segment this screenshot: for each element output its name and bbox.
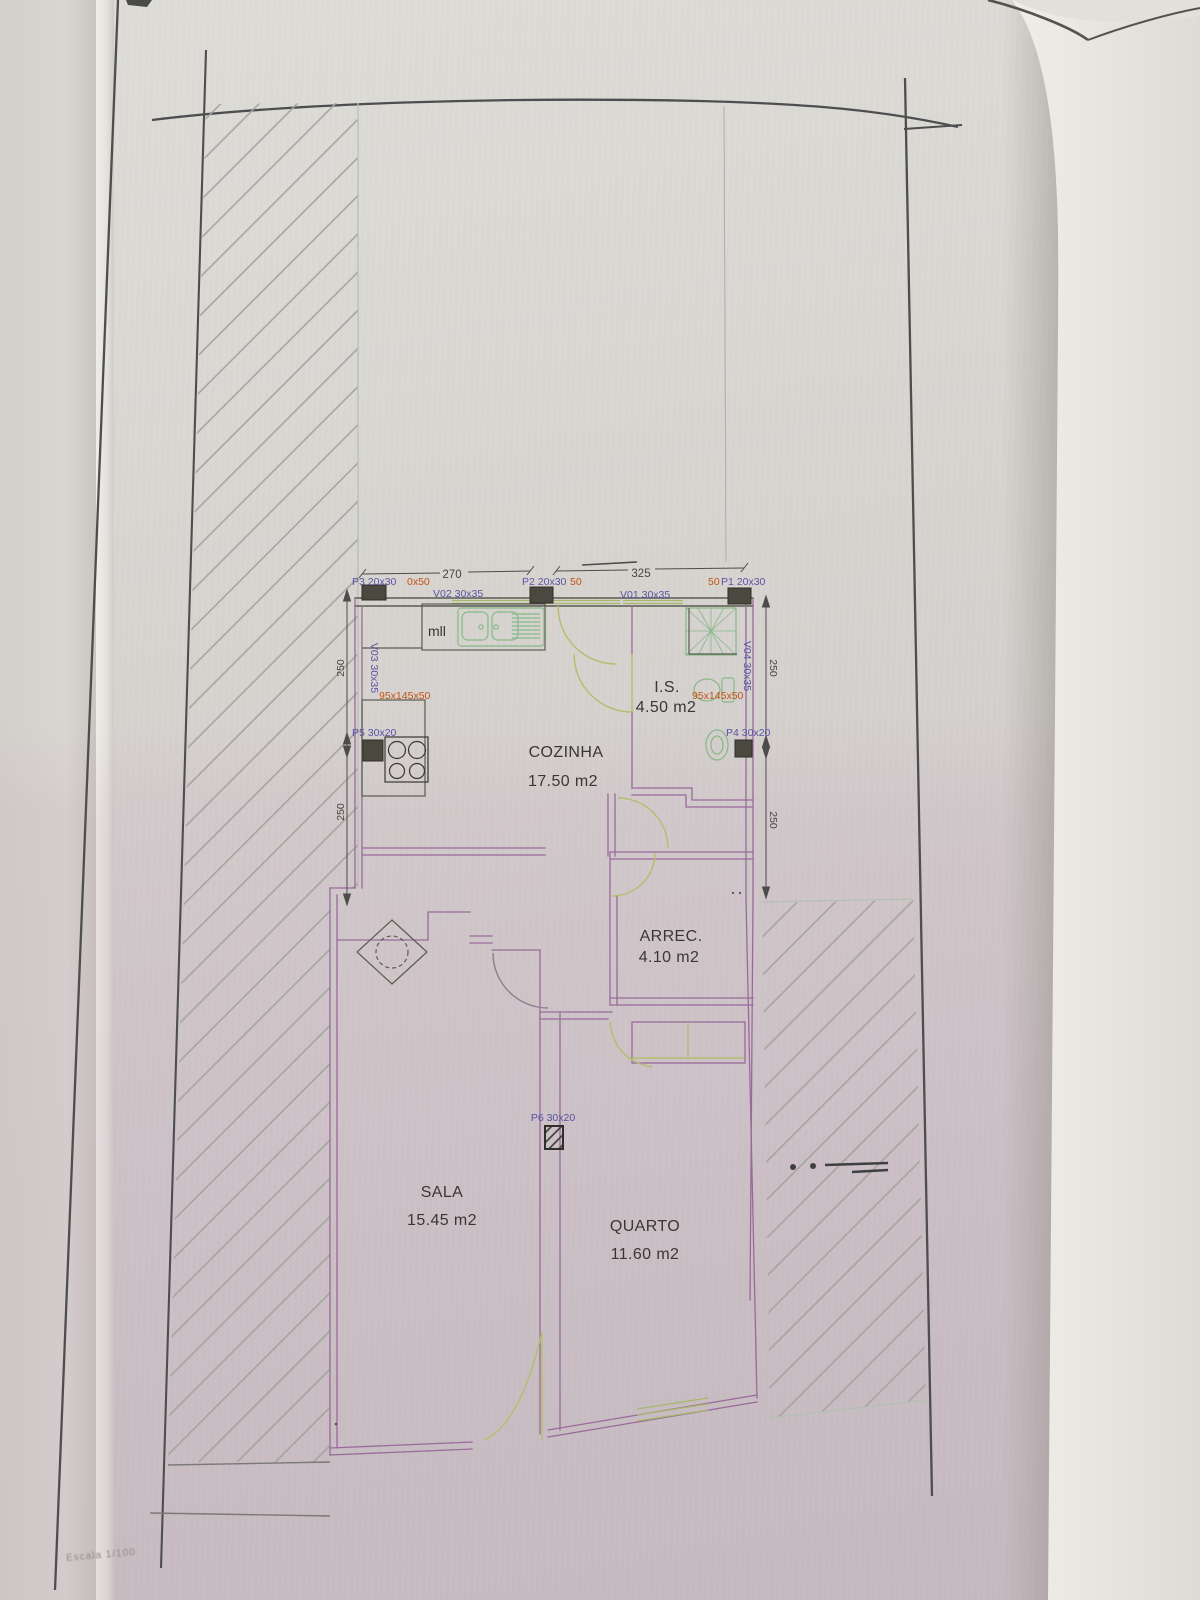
label-door-p4: P4 30x20 bbox=[726, 727, 771, 739]
hatch-bottom-line-2 bbox=[150, 1513, 330, 1516]
door-quarto-arc bbox=[610, 1022, 652, 1067]
dim-325: 325 bbox=[631, 568, 650, 580]
floor-plan-photo: P3 20x30 0x50 270 V02 30x35 P2 20x30 50 … bbox=[0, 0, 1200, 1600]
door-p2-arc bbox=[558, 606, 616, 664]
room-name-sala: SALA bbox=[421, 1184, 464, 1201]
left-border-line bbox=[55, 0, 118, 1590]
dim-250-right-lower: 250 bbox=[767, 811, 779, 829]
note-after-p3: 0x50 bbox=[407, 576, 430, 588]
curled-page-edge bbox=[988, 0, 1200, 1600]
label-door-p2: P2 20x30 bbox=[522, 576, 567, 588]
stray-marks bbox=[335, 892, 741, 1425]
pillars bbox=[362, 585, 752, 1149]
pillar-p6 bbox=[545, 1126, 563, 1149]
corridor-door-arc bbox=[618, 798, 668, 848]
shower bbox=[686, 608, 736, 655]
hatch-bottom-line-1 bbox=[168, 1462, 330, 1465]
label-appliance-mll: mll bbox=[428, 623, 446, 639]
door-arcs bbox=[484, 606, 744, 1440]
door-sala-arc bbox=[484, 1332, 542, 1440]
label-window-v01: V01 30x35 bbox=[620, 589, 670, 601]
washbasin bbox=[706, 730, 728, 760]
room-name-arrec: ARREC. bbox=[640, 928, 703, 945]
note-after-p2: 50 bbox=[570, 576, 582, 588]
dim-250-left-upper: 250 bbox=[335, 659, 347, 677]
site-boundary-line bbox=[724, 106, 726, 562]
room-name-is: I.S. bbox=[654, 679, 680, 696]
floor-plan-drawing: P3 20x30 0x50 270 V02 30x35 P2 20x30 50 … bbox=[0, 0, 1200, 1600]
note-bathroom-counter: 95x145x50 bbox=[692, 690, 744, 702]
label-window-v04: V04 30x35 bbox=[741, 641, 753, 691]
room-name-quarto: QUARTO bbox=[610, 1218, 680, 1235]
dim-250-right-upper: 250 bbox=[767, 659, 779, 677]
label-door-p3: P3 20x30 bbox=[352, 576, 397, 588]
note-before-p1: 50 bbox=[708, 576, 720, 588]
pillar-p1 bbox=[728, 588, 751, 604]
room-area-is: 4.50 m2 bbox=[636, 699, 697, 716]
corner-stove bbox=[357, 920, 427, 984]
top-outer-wall bbox=[355, 598, 753, 606]
hatched-zones bbox=[150, 103, 926, 1516]
dimension-lines bbox=[344, 562, 770, 905]
room-name-cozinha: COZINHA bbox=[529, 744, 604, 761]
label-door-p1: P1 20x30 bbox=[721, 576, 766, 588]
label-window-v03: V03 30x35 bbox=[368, 643, 380, 693]
dim-250-left-lower: 250 bbox=[335, 803, 347, 821]
pillar-p5 bbox=[363, 740, 383, 761]
kitchen-hob bbox=[385, 737, 428, 782]
room-area-arrec: 4.10 m2 bbox=[639, 949, 700, 966]
page-curl-shadow bbox=[1002, 0, 1058, 1600]
room-area-cozinha: 17.50 m2 bbox=[528, 773, 598, 790]
label-window-v02: V02 30x35 bbox=[433, 588, 483, 600]
dim-270: 270 bbox=[442, 569, 461, 581]
top-edge-mark bbox=[126, 0, 152, 7]
room-area-quarto: 11.60 m2 bbox=[611, 1246, 680, 1263]
kitchen-sink bbox=[458, 608, 544, 646]
right-hatch-zone bbox=[762, 900, 926, 1418]
label-door-p5: P5 30x20 bbox=[352, 727, 397, 739]
note-kitchen-counter: 95x145x50 bbox=[379, 690, 431, 702]
label-door-p6: P6 30x20 bbox=[531, 1112, 576, 1124]
plan-labels: P3 20x30 0x50 270 V02 30x35 P2 20x30 50 … bbox=[335, 568, 779, 1263]
pillar-p4 bbox=[735, 740, 752, 757]
room-area-sala: 15.45 m2 bbox=[407, 1212, 477, 1229]
windows bbox=[452, 601, 708, 1422]
green-door-arcs bbox=[484, 606, 744, 1440]
pillar-p2 bbox=[530, 587, 553, 603]
